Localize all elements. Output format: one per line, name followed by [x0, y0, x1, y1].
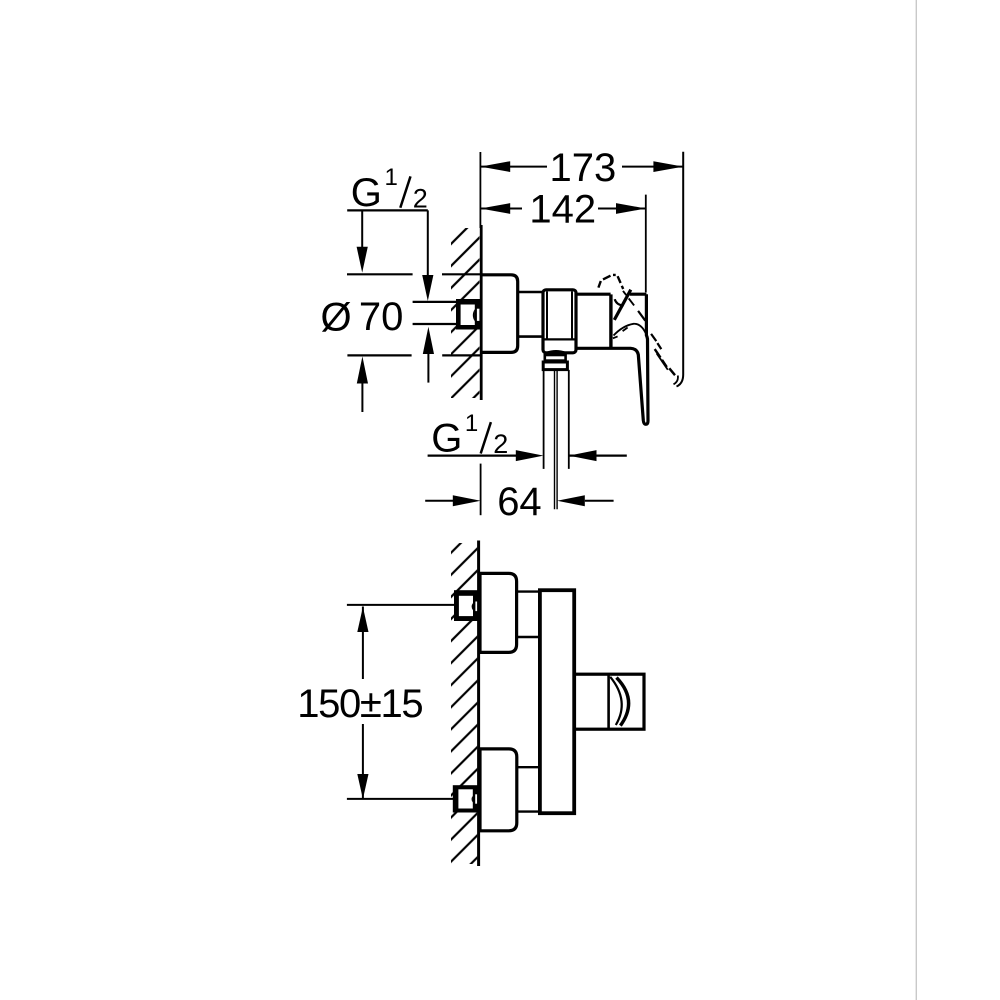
svg-text:G: G	[431, 417, 462, 461]
svg-text:2: 2	[413, 183, 428, 213]
svg-text:G: G	[351, 171, 382, 215]
svg-text:173: 173	[550, 146, 617, 190]
svg-text:1: 1	[385, 164, 398, 191]
svg-text:150±15: 150±15	[297, 682, 422, 726]
svg-text:2: 2	[493, 429, 508, 459]
svg-text:142: 142	[529, 188, 596, 232]
svg-text:Ø: Ø	[321, 295, 352, 339]
svg-text:70: 70	[359, 295, 404, 339]
svg-text:64: 64	[497, 480, 542, 524]
svg-text:1: 1	[465, 410, 478, 437]
